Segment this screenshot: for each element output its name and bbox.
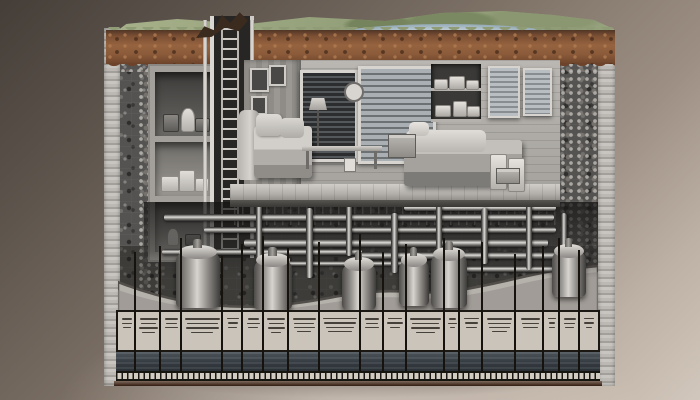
supply-stack: [453, 101, 467, 117]
picture-frame: [269, 65, 286, 86]
legend-text-mark: [123, 327, 130, 328]
legend-text-mark: [142, 332, 155, 333]
legend-text-mark: [365, 318, 380, 320]
legend-text-mark: [464, 318, 479, 319]
bench-leg: [306, 151, 309, 169]
bench-leg: [374, 151, 377, 169]
stored-item: [179, 170, 195, 192]
legend-text-mark: [326, 327, 355, 328]
legend-column-14: [460, 312, 483, 350]
legend-text-mark: [487, 318, 512, 320]
legend-text-mark: [565, 327, 574, 328]
stored-item: [161, 176, 179, 192]
legend-text-mark: [228, 322, 238, 324]
ruler-ticks-top: [116, 373, 600, 376]
leader-line: [359, 234, 361, 371]
block-bottom-edge: [114, 381, 602, 386]
legend-text-mark: [366, 323, 379, 324]
leader-line: [180, 238, 182, 371]
storage-crate: [388, 134, 416, 158]
leader-line: [134, 252, 136, 371]
lamp-shade: [309, 98, 327, 110]
pipe: [346, 204, 352, 256]
supply-stack: [467, 106, 480, 117]
couch-cushion: [256, 114, 282, 136]
legend-text-mark: [492, 331, 507, 332]
legend-text-mark: [488, 323, 511, 324]
supply-stack: [449, 76, 465, 90]
legend-column-4: [182, 312, 223, 350]
pipe: [456, 266, 564, 272]
legend-text-mark: [165, 318, 177, 320]
legend-text-mark: [521, 318, 541, 320]
legend-text-mark: [141, 323, 156, 324]
legend-text-mark: [449, 318, 457, 320]
bench-table: [302, 146, 382, 151]
legend-text-mark: [191, 332, 213, 333]
legend-column-9: [320, 312, 361, 350]
legend-text-mark: [323, 318, 358, 319]
pipe: [164, 214, 554, 221]
legend-text-mark: [294, 323, 314, 324]
legend-text-mark: [228, 327, 237, 328]
legend-text-mark: [186, 327, 219, 329]
legend-text-mark: [122, 323, 133, 324]
leader-line: [262, 236, 264, 371]
legend-text-mark: [584, 318, 594, 319]
stored-item: [181, 108, 195, 132]
leader-line: [221, 256, 223, 371]
legend-text-mark: [466, 327, 477, 328]
legend-text-mark: [166, 323, 177, 324]
legend-text-mark: [248, 327, 258, 328]
legend-text-mark: [227, 318, 239, 319]
legend-text-mark: [411, 327, 440, 329]
soil-layer: [106, 30, 615, 64]
legend-text-mark: [388, 318, 402, 319]
legend-column-6: [243, 312, 263, 350]
legend-text-mark: [489, 327, 511, 328]
leader-line: [558, 238, 560, 371]
legend-text-mark: [448, 323, 456, 324]
legend-text-mark: [122, 318, 132, 320]
boiler-tank-1: [176, 252, 220, 308]
legend-text-mark: [139, 327, 158, 329]
legend-text-mark: [328, 331, 353, 332]
legend-text-mark: [549, 327, 555, 328]
legend-column-12: [407, 312, 445, 350]
floor-slab-edge: [230, 200, 560, 207]
bunker-block: [104, 8, 616, 386]
legend-text-mark: [185, 318, 220, 320]
storage-box: [496, 168, 520, 184]
wall-clock: [344, 82, 364, 102]
legend-text-mark: [586, 327, 592, 328]
legend-table: [116, 310, 600, 352]
pipe: [526, 204, 532, 270]
legend-column-7: [264, 312, 290, 350]
legend-text-mark: [387, 322, 403, 324]
leader-line: [405, 244, 407, 371]
legend-column-8: [289, 312, 320, 350]
leader-line: [287, 248, 289, 371]
legend-text-mark: [271, 332, 281, 333]
legend-column-16: [516, 312, 544, 350]
legend-text-mark: [416, 332, 435, 333]
legend-text-mark: [248, 318, 259, 320]
legend-text-mark: [297, 331, 311, 332]
window-4: [523, 68, 552, 116]
scale-ruler: [116, 371, 600, 381]
floor-lamp: [317, 108, 319, 148]
legend-text-mark: [267, 318, 285, 320]
leader-line: [382, 252, 384, 371]
legend-text-mark: [140, 318, 158, 320]
legend-column-3: [161, 312, 181, 350]
legend-text-mark: [390, 327, 400, 328]
leader-line: [159, 246, 161, 371]
legend-text-mark: [584, 322, 595, 324]
shelf-board: [431, 119, 481, 122]
leader-line: [318, 242, 320, 371]
legend-text-mark: [187, 323, 218, 324]
legend-text-mark: [523, 327, 538, 328]
leader-line: [481, 242, 483, 371]
window-3: [488, 66, 520, 118]
legend-text-mark: [269, 323, 284, 324]
boiler-tank-5: [431, 254, 467, 308]
pipe: [306, 208, 313, 278]
legend-text-mark: [324, 322, 357, 324]
picture-frame: [250, 68, 269, 92]
legend-text-mark: [412, 323, 439, 324]
legend-text-mark: [165, 327, 178, 328]
grass-edge: [106, 27, 615, 34]
leader-line: [578, 250, 580, 371]
strata-band: [116, 352, 600, 371]
scene-backdrop: [0, 0, 700, 400]
leader-line: [514, 254, 516, 371]
ruler-ticks-bottom: [116, 376, 600, 379]
leader-line: [241, 244, 243, 371]
legend-column-2: [136, 312, 162, 350]
supply-shelf-unit: [431, 64, 481, 122]
legend-text-mark: [410, 318, 441, 320]
legend-text-mark: [549, 322, 556, 324]
legend-text-mark: [247, 323, 260, 324]
floor-object: [344, 158, 356, 172]
pipe: [391, 213, 398, 273]
legend-column-19: [580, 312, 598, 350]
legend-text-mark: [293, 318, 316, 320]
legend-text-mark: [465, 322, 479, 324]
leader-line: [458, 250, 460, 371]
legend-text-mark: [564, 323, 575, 324]
legend-column-10: [361, 312, 384, 350]
legend-text-mark: [548, 318, 556, 319]
boiler-tank-4: [399, 260, 429, 306]
stored-item: [163, 114, 179, 132]
legend-text-mark: [294, 327, 315, 328]
legend-text-mark: [522, 323, 539, 324]
cut-face-right: [598, 34, 615, 386]
legend-text-mark: [450, 327, 455, 328]
legend-column-11: [384, 312, 407, 350]
supply-stack: [435, 105, 451, 117]
leader-line: [542, 246, 544, 371]
leader-line: [443, 238, 445, 371]
legend-text-mark: [268, 327, 285, 329]
legend-text-mark: [564, 318, 576, 320]
legend-column-15: [483, 312, 516, 350]
couch-cushion: [280, 118, 304, 138]
supply-stack: [466, 80, 479, 90]
supply-stack: [434, 79, 448, 90]
legend-text-mark: [365, 327, 379, 328]
